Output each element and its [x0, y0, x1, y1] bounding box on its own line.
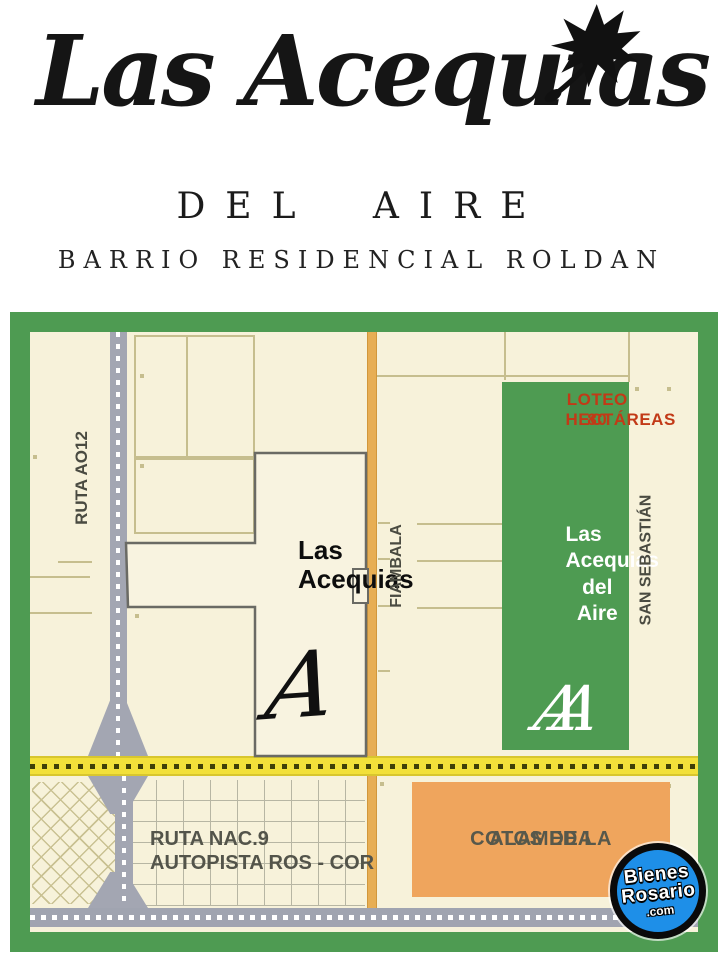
ruta-nac9-label: RUTA NAC.9: [150, 828, 269, 851]
city-block-grid: [667, 387, 693, 747]
location-map: Las Acequias A LOTEO 80 HECTÁREAS Las Ac…: [10, 312, 718, 952]
cotos-line2: ALAMEDA: [489, 826, 593, 853]
block-line: [30, 612, 92, 614]
las-acequias-monogram: A: [261, 638, 341, 734]
bienes-rosario-text: Bienes Rosario .com: [618, 861, 697, 920]
road-centerline: [30, 915, 698, 920]
leaf-icon: [533, 2, 648, 106]
street-label-fiambala: FIAMBALA: [385, 510, 409, 622]
las-acequias-del-aire-label: Las Acequias del Aire: [502, 522, 629, 575]
street-label-ruta-ao12: RUTA AO12: [70, 420, 94, 535]
autopista-road: [30, 908, 698, 927]
block-line: [417, 607, 502, 609]
loteo-badge: LOTEO 80 HECTÁREAS: [502, 390, 629, 410]
las-acequias-label: Las Acequias: [228, 536, 368, 565]
road-tick: [58, 561, 92, 563]
road-centerline: [122, 776, 126, 908]
lot-name-line1: Las: [566, 522, 602, 548]
block-line: [30, 576, 90, 578]
bienes-rosario-watermark: Bienes Rosario .com: [610, 843, 706, 939]
road-centerline: [30, 764, 698, 769]
road-tick: [378, 670, 390, 672]
las-acequias-line1: Las: [298, 536, 343, 565]
lot-name-line3: del Aire: [566, 575, 630, 628]
las-acequias-parcel: [118, 449, 370, 760]
brand-subtitle: DEL AIRE: [0, 186, 723, 227]
loteo-line2: HECTÁREAS: [566, 410, 676, 430]
brand-tagline: BARRIO RESIDENCIAL ROLDAN: [0, 246, 723, 274]
block-line: [504, 332, 506, 380]
street-label-san-sebastian: SAN SEBASTIÁN: [634, 490, 658, 630]
city-block-grid: [33, 455, 65, 521]
las-acequias-del-aire-parcel: LOTEO 80 HECTÁREAS Las Acequias del Aire…: [502, 382, 629, 750]
city-block-grid: [380, 782, 408, 902]
las-acequias-del-aire-monogram: AA: [495, 678, 635, 740]
block-line: [376, 375, 629, 377]
city-block-grid: [140, 374, 250, 418]
autopista-label: AUTOPISTA ROS - COR: [150, 852, 374, 875]
block-line: [628, 332, 630, 382]
block-line: [417, 523, 502, 525]
block-line: [417, 560, 502, 562]
